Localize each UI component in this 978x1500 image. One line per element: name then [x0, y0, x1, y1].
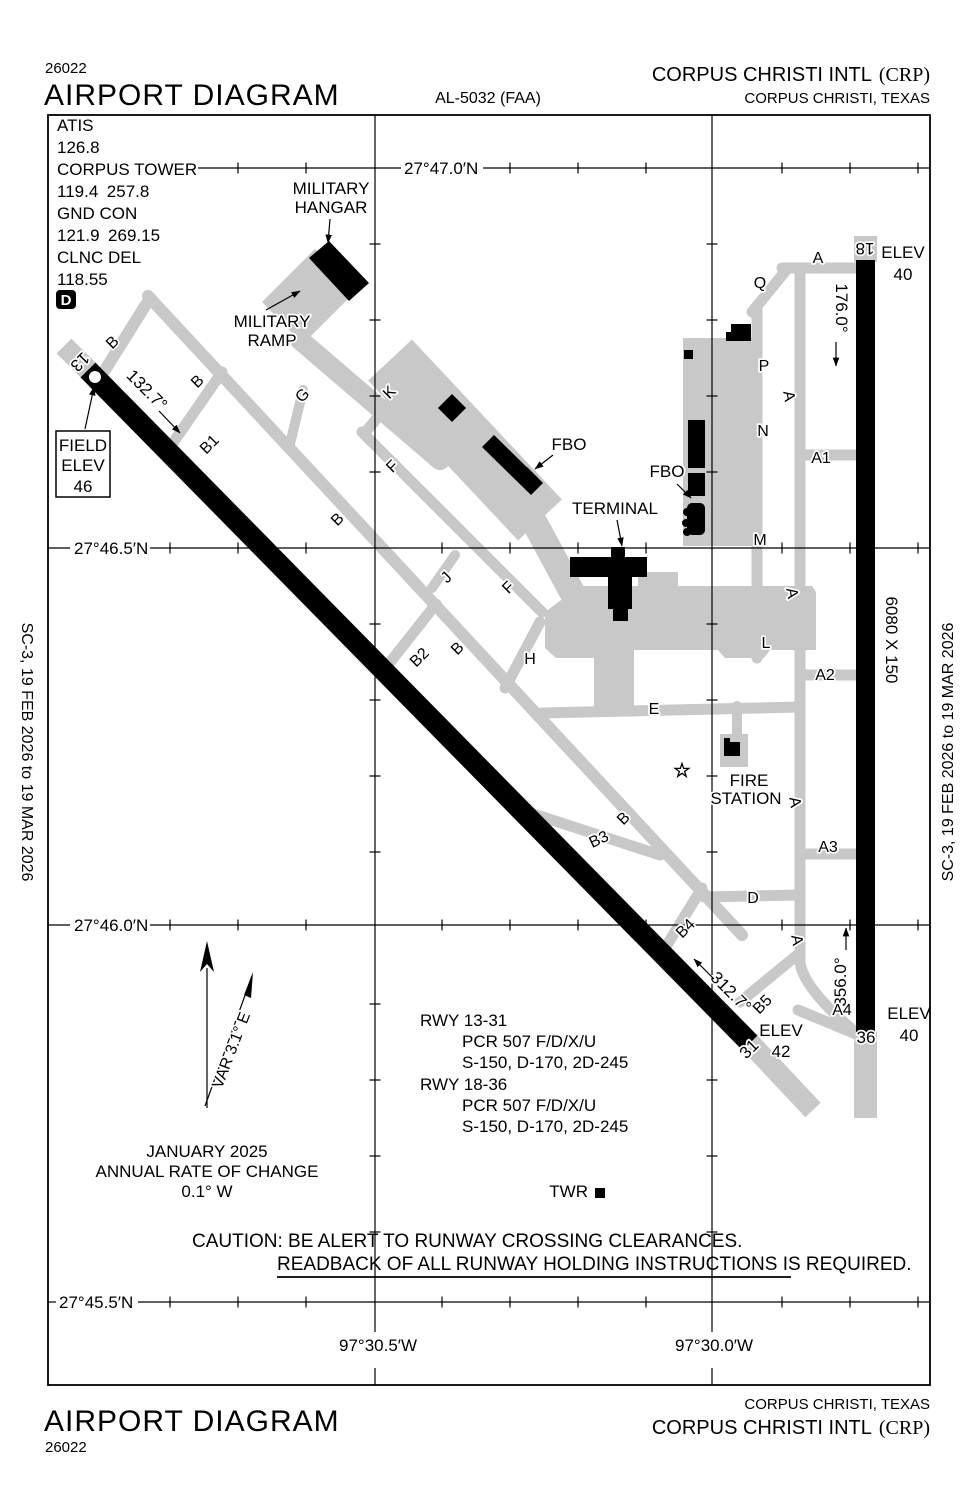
- caution-line-2: READBACK OF ALL RUNWAY HOLDING INSTRUCTI…: [277, 1254, 912, 1275]
- taxiway-network: [64, 236, 866, 1118]
- header-airport-code: (CRP): [879, 64, 930, 86]
- rwy36-elev-label: ELEV: [887, 1004, 931, 1023]
- taxiway-label-p: P: [759, 358, 770, 375]
- rwy18-heading: 176.0°: [832, 283, 851, 332]
- taxiway-label-e: E: [649, 701, 660, 718]
- east-apron-aircraft: [683, 508, 691, 516]
- fire-station-label-2: STATION: [710, 789, 781, 808]
- variation-date: JANUARY 2025: [146, 1142, 267, 1161]
- footer-title: AIRPORT DIAGRAM: [44, 1405, 340, 1438]
- footer-airport-name: CORPUS CHRISTI INTL(CRP): [652, 1417, 930, 1439]
- terminal-arrow: [617, 520, 622, 546]
- rwy1331-pcr: PCR 507 F/D/X/U: [462, 1032, 596, 1051]
- footer-city: CORPUS CHRISTI, TEXAS: [744, 1396, 930, 1413]
- declared-distances-symbol: D: [61, 292, 72, 309]
- military-hangar-arrow: [328, 219, 330, 243]
- variation-arrow-head: [244, 972, 253, 998]
- north-arrow-head: [200, 941, 214, 972]
- terminal-building: [570, 557, 647, 577]
- taxiway-label-d: D: [747, 890, 759, 907]
- left-edge-effective-dates: SC-3, 19 FEB 2026 to 19 MAR 2026: [18, 623, 35, 882]
- taxiway-label-a2: A2: [815, 667, 835, 684]
- taxiway-label-h: H: [524, 651, 536, 668]
- terminal-apron: [545, 572, 816, 658]
- compass-rose: VAR 3.1° E JANUARY 2025 ANNUAL RATE OF C…: [96, 941, 319, 1201]
- rwy18-elev-label: ELEV: [881, 243, 925, 262]
- header: 26022 AIRPORT DIAGRAM AL-5032 (FAA) CORP…: [44, 60, 930, 112]
- header-sheet-number: 26022: [45, 60, 87, 77]
- tower-freq: 119.4 257.8: [57, 182, 149, 201]
- terminal-building-nub: [611, 547, 625, 557]
- rwy1331-strength: S-150, D-170, 2D-245: [462, 1053, 628, 1072]
- rwy36-elev-value: 40: [900, 1026, 919, 1045]
- runway-data-block: RWY 13-31 PCR 507 F/D/X/U S-150, D-170, …: [420, 1011, 628, 1136]
- military-hangar-label-2: HANGAR: [295, 198, 368, 217]
- footer-airport-code: (CRP): [879, 1417, 930, 1439]
- header-airport: CORPUS CHRISTI INTL: [652, 64, 872, 86]
- lon-label-300: 97°30.0′W: [675, 1336, 753, 1355]
- taxiway-label-b1: B1: [197, 432, 223, 458]
- header-city: CORPUS CHRISTI, TEXAS: [744, 90, 930, 107]
- military-ramp-label-2: RAMP: [247, 331, 296, 350]
- rwy1331-data-title: RWY 13-31: [420, 1011, 507, 1030]
- runway13-displaced-threshold-circle: [89, 371, 101, 383]
- annual-rate-label: ANNUAL RATE OF CHANGE: [96, 1162, 319, 1181]
- footer-sheet-number: 26022: [45, 1439, 87, 1456]
- fire-station-building: [724, 742, 740, 756]
- rwy-end-36: 36: [857, 1028, 876, 1047]
- chart-reference: AL-5032 (FAA): [435, 90, 541, 107]
- footer-airport: CORPUS CHRISTI INTL: [652, 1417, 872, 1439]
- rwy1836-dimensions: 6080 X 150: [882, 597, 901, 684]
- annual-rate-value: 0.1° W: [181, 1182, 232, 1201]
- frequency-block: ATIS 126.8 CORPUS TOWER 119.4 257.8 GND …: [56, 116, 197, 309]
- military-ramp-label-1: MILITARY: [234, 312, 311, 331]
- taxiway-label-a3: A3: [818, 839, 838, 856]
- taxiway-e: [542, 707, 800, 713]
- apron-stub: [594, 650, 634, 710]
- military-hangar-label-1: MILITARY: [293, 179, 370, 198]
- rwy36-heading: 356.0°: [831, 957, 850, 1006]
- taxiway-label-b2: B2: [407, 645, 433, 671]
- rwy31-elev-value: 42: [772, 1042, 791, 1061]
- taxiway-label-a4: A4: [832, 1002, 852, 1019]
- airport-diagram-page: 26022 AIRPORT DIAGRAM AL-5032 (FAA) CORP…: [0, 0, 978, 1500]
- tower-building: [595, 1188, 605, 1198]
- tower-label: TWR: [549, 1182, 588, 1201]
- rwy31-elev-label: ELEV: [759, 1021, 803, 1040]
- ground-label: GND CON: [57, 204, 137, 223]
- east-apron-aircraft: [682, 519, 690, 527]
- rwy13-heading-arrow: [159, 411, 180, 433]
- terminal-building-south: [613, 609, 628, 621]
- lat-label-470: 27°47.0′N: [404, 159, 478, 178]
- fbo-west-arrow: [535, 455, 553, 469]
- lat-label-460: 27°46.0′N: [74, 916, 148, 935]
- east-apron-aircraft: [683, 528, 691, 536]
- rwy-end-18: 18: [856, 239, 875, 258]
- beacon-star-icon: ☆: [673, 760, 691, 782]
- caution-line-1: CAUTION: BE ALERT TO RUNWAY CROSSING CLE…: [192, 1231, 742, 1252]
- lon-label-305: 97°30.5′W: [339, 1336, 417, 1355]
- rwy18-elev-value: 40: [894, 265, 913, 284]
- rwy1836-pcr: PCR 507 F/D/X/U: [462, 1096, 596, 1115]
- taxiway-label-m: M: [753, 532, 766, 549]
- field-elev-l2: ELEV: [61, 456, 105, 475]
- field-elev-arrow: [85, 387, 94, 429]
- taxiway-label-n: N: [757, 423, 769, 440]
- terminal-label: TERMINAL: [572, 499, 658, 518]
- page-title: AIRPORT DIAGRAM: [44, 79, 340, 112]
- fire-station-label-1: FIRE: [730, 771, 769, 790]
- taxiway-label-q: Q: [754, 275, 766, 292]
- fbo-east-label: FBO: [650, 462, 685, 481]
- rwy1836-strength: S-150, D-170, 2D-245: [462, 1117, 628, 1136]
- taxiway-label-a1: A1: [811, 450, 831, 467]
- clearance-label: CLNC DEL: [57, 248, 141, 267]
- lat-label-465: 27°46.5′N: [74, 539, 148, 558]
- east-apron-small-building: [684, 350, 693, 359]
- taxiway-label-a: A: [813, 250, 824, 267]
- north-apron-building: [731, 324, 751, 341]
- clearance-freq: 118.55: [57, 270, 108, 289]
- ground-freq: 121.9 269.15: [57, 226, 160, 245]
- lat-label-455: 27°45.5′N: [59, 1293, 133, 1312]
- east-fbo-building-1: [688, 420, 705, 468]
- atis-freq: 126.8: [57, 138, 100, 157]
- header-airport-name: CORPUS CHRISTI INTL(CRP): [652, 64, 930, 86]
- field-elev-value: 46: [74, 477, 93, 496]
- north-apron-building-step: [726, 332, 733, 341]
- field-elev-l1: FIELD: [59, 436, 107, 455]
- east-fbo-building-2: [688, 473, 705, 496]
- variation-label: VAR 3.1° E: [210, 1010, 255, 1091]
- footer: AIRPORT DIAGRAM 26022 CORPUS CHRISTI, TE…: [44, 1396, 930, 1456]
- field-elev-box: FIELD ELEV 46: [56, 387, 110, 497]
- atis-label: ATIS: [57, 116, 94, 135]
- fbo-west-label: FBO: [552, 435, 587, 454]
- rwy1836-data-title: RWY 18-36: [420, 1075, 507, 1094]
- terminal-building-stem: [608, 577, 632, 609]
- taxiway-label-l: L: [762, 635, 771, 652]
- caution-note: CAUTION: BE ALERT TO RUNWAY CROSSING CLE…: [192, 1231, 912, 1277]
- diagram-canvas: 26022 AIRPORT DIAGRAM AL-5032 (FAA) CORP…: [0, 0, 978, 1500]
- right-edge-effective-dates: SC-3, 19 FEB 2026 to 19 MAR 2026: [940, 622, 957, 881]
- tower-label: CORPUS TOWER: [57, 160, 197, 179]
